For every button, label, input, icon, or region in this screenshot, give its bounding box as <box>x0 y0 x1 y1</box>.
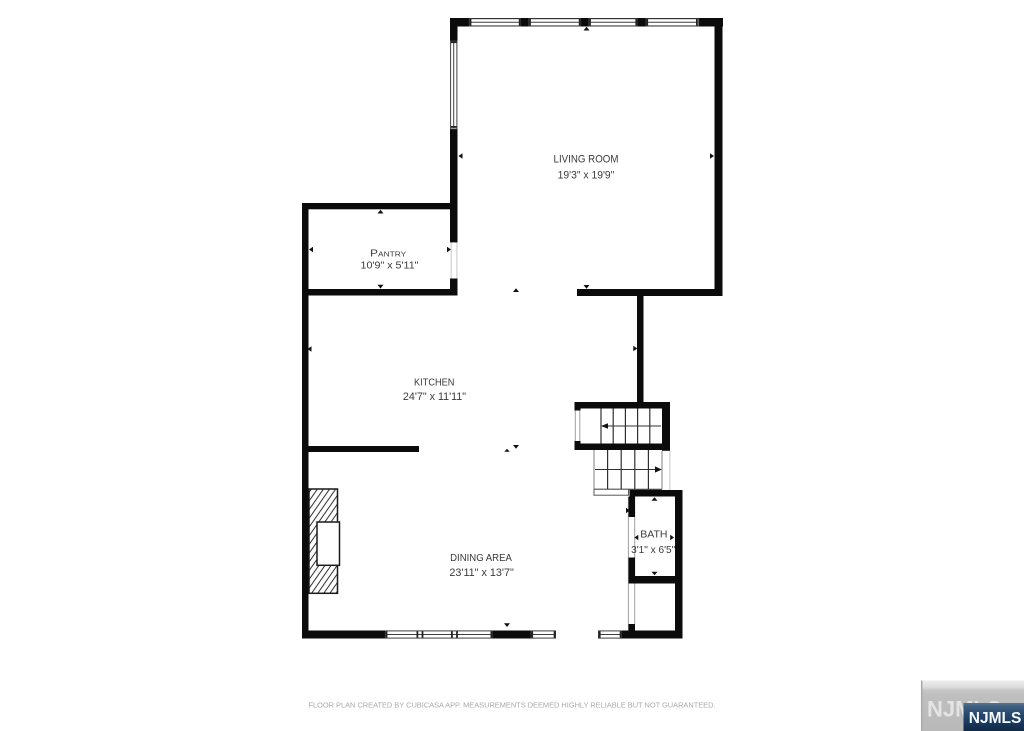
svg-text:KITCHEN: KITCHEN <box>414 377 454 389</box>
svg-text:23'11" x 13'7": 23'11" x 13'7" <box>449 567 513 579</box>
svg-text:10'9" x 5'11": 10'9" x 5'11" <box>361 261 419 272</box>
svg-text:BATH: BATH <box>640 528 667 540</box>
svg-text:19'3" x 19'9": 19'3" x 19'9" <box>558 170 615 182</box>
svg-text:Pantry: Pantry <box>370 249 406 260</box>
svg-text:24'7" x 11'11": 24'7" x 11'11" <box>403 391 466 403</box>
svg-text:DINING AREA: DINING AREA <box>450 552 512 564</box>
svg-text:FLOOR PLAN CREATED BY CUBICASA: FLOOR PLAN CREATED BY CUBICASA APP. MEAS… <box>309 701 716 710</box>
svg-text:3'1" x 6'5": 3'1" x 6'5" <box>631 544 675 556</box>
svg-text:NJMLS: NJMLS <box>969 710 1022 727</box>
svg-text:LIVING ROOM: LIVING ROOM <box>554 154 619 166</box>
